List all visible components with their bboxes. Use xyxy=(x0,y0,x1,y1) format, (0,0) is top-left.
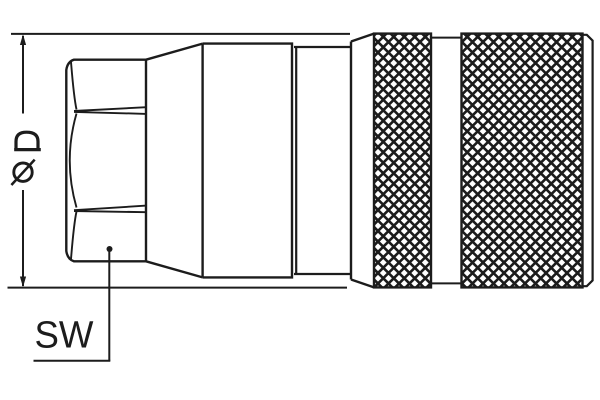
svg-text:SW: SW xyxy=(35,315,94,357)
